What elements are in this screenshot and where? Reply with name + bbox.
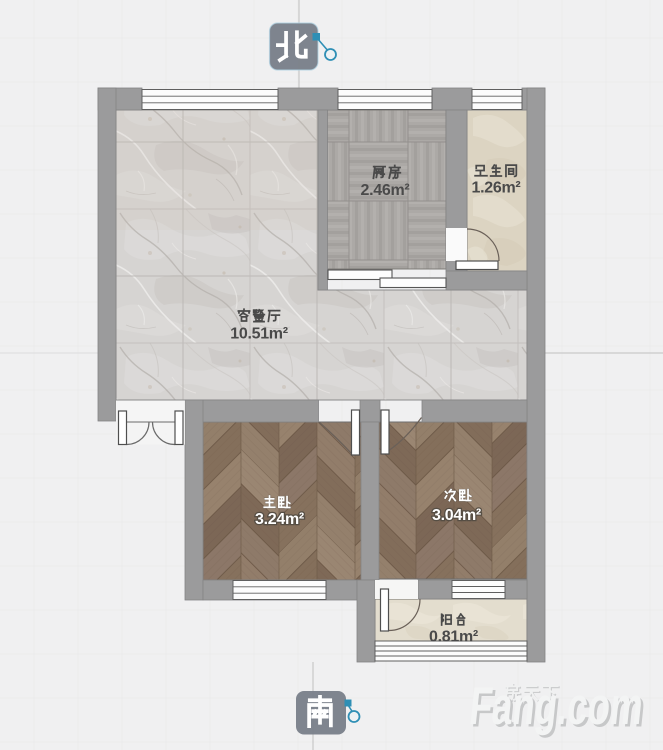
svg-text:10.51m²: 10.51m² (230, 326, 288, 343)
svg-text:1.26m²: 1.26m² (472, 180, 521, 197)
svg-text:Fang.com: Fang.com (467, 677, 646, 736)
svg-text:2.46m²: 2.46m² (361, 182, 410, 199)
svg-text:0.81m²: 0.81m² (429, 629, 478, 646)
svg-text:3.04m²: 3.04m² (432, 507, 481, 524)
svg-text:3.24m²: 3.24m² (255, 511, 304, 528)
